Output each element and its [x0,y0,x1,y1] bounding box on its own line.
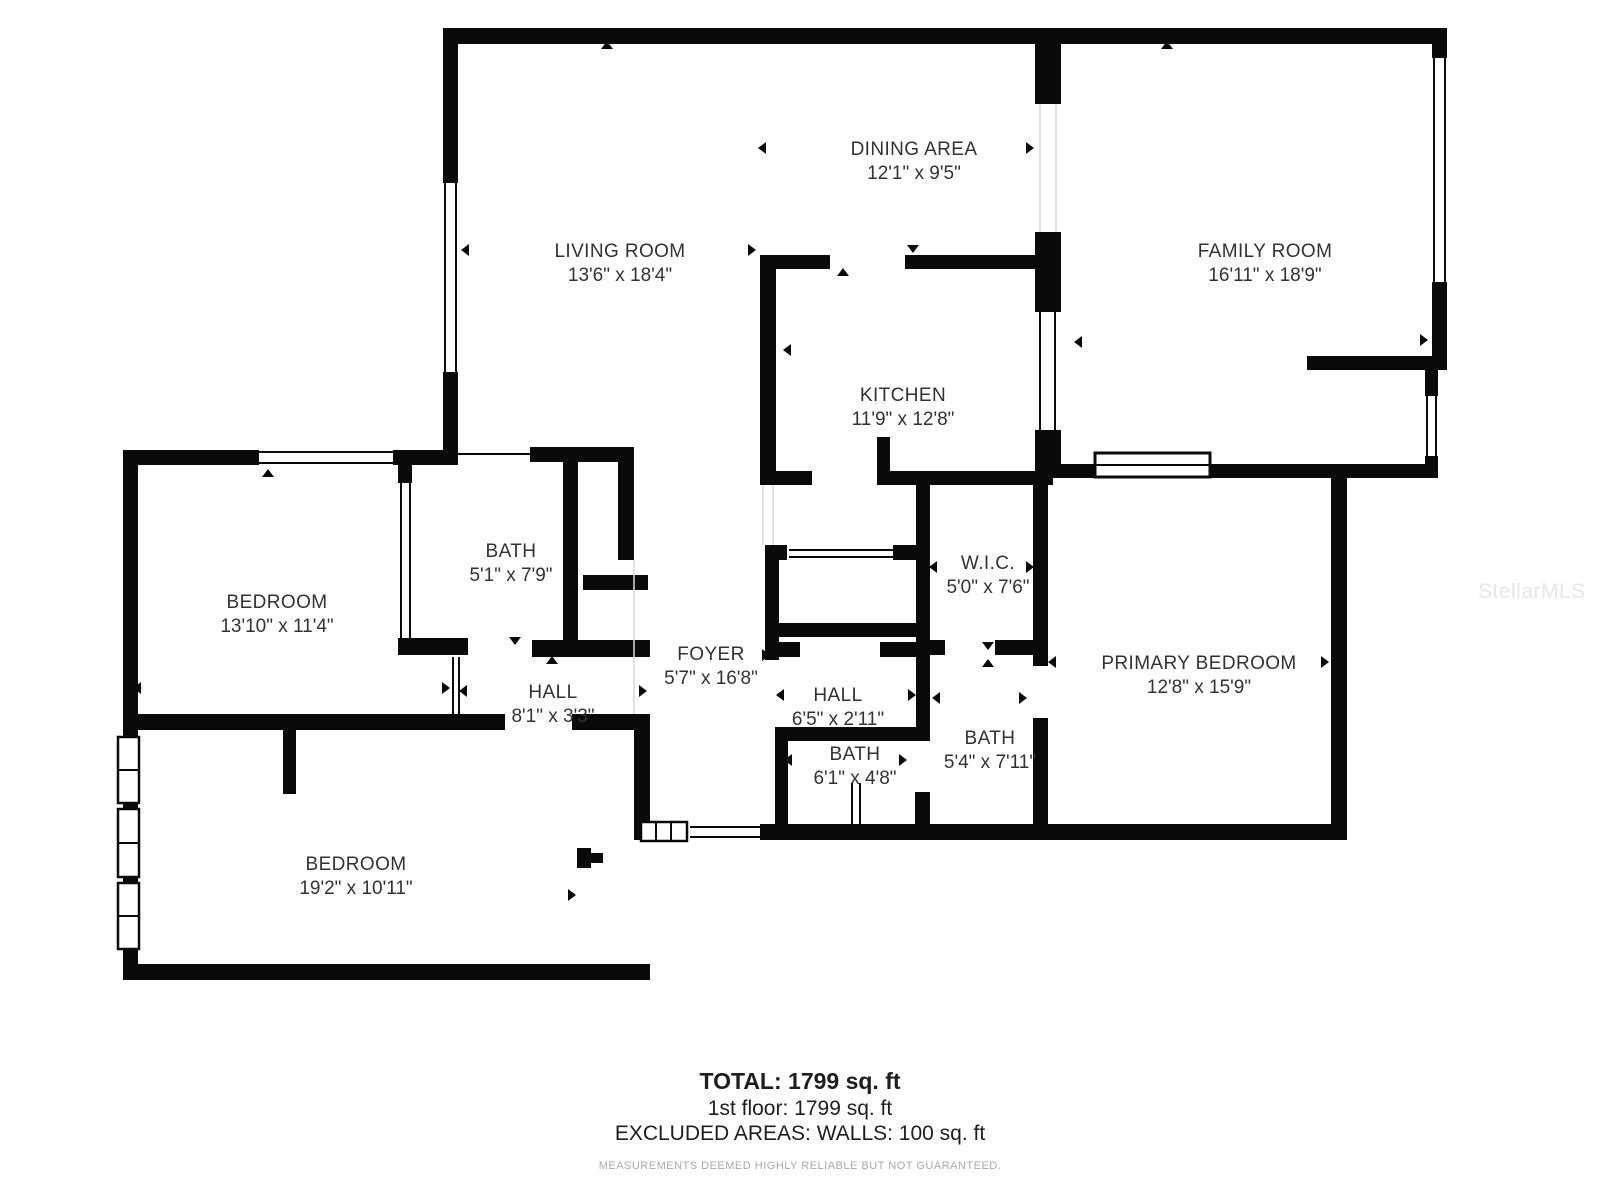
total-area-text: TOTAL: 1799 sq. ft [0,1066,1600,1096]
room-label-kitchen: KITCHEN 11'9" x 12'8" [852,384,955,432]
room-name: BEDROOM [220,591,333,615]
arrow-left-icon [758,142,766,154]
room-dims: 6'5" x 2'11" [792,708,884,732]
room-name: W.I.C. [946,552,1029,576]
room-dims: 5'4" x 7'11" [944,751,1036,775]
arrow-down-icon [907,245,919,253]
window-icon [1035,312,1061,430]
arrow-down-icon [509,637,521,645]
window-icon [443,183,458,372]
room-label-bath-3: BATH 5'4" x 7'11" [944,727,1036,775]
arrow-left-icon [1048,656,1056,668]
room-dims: 8'1" x 3'3" [511,705,594,729]
room-label-hall-1: HALL 8'1" x 3'3" [511,681,594,729]
room-dims: 19'2" x 10'11" [299,877,412,901]
arrow-up-icon [262,469,274,477]
room-name: BATH [813,743,896,767]
room-name: DINING AREA [851,138,978,162]
room-dims: 13'10" x 11'4" [220,615,333,639]
stellar-mls-watermark: StellarMLS [1478,580,1586,604]
arrow-left-icon [776,689,784,701]
window-icon [1432,58,1447,282]
arrow-right-icon [1321,656,1329,668]
room-label-primary-bedroom: PRIMARY BEDROOM 12'8" x 15'9" [1101,652,1296,700]
floor-plan-page: DINING AREA 12'1" x 9'5" LIVING ROOM 13'… [0,0,1600,1200]
room-name: BATH [469,540,552,564]
arrow-left-icon [459,685,467,697]
room-dims: 5'0" x 7'6" [946,576,1029,600]
arrow-up-icon [546,656,558,664]
arrow-right-icon [899,754,907,766]
entry-door-icon [641,822,687,841]
sliding-window-icon [1095,453,1210,477]
window-icon [259,450,393,465]
room-name: BEDROOM [299,853,412,877]
faint-guide-lines [634,104,1056,714]
arrow-left-icon [1074,336,1082,348]
arrow-right-icon [1019,692,1027,704]
wall-segments [123,28,1447,980]
room-dims: 5'1" x 7'9" [469,564,552,588]
room-label-living-room: LIVING ROOM 13'6" x 18'4" [554,240,685,288]
room-name: BATH [944,727,1036,751]
room-dims: 12'8" x 15'9" [1101,676,1296,700]
room-label-foyer: FOYER 5'7" x 16'8" [664,643,758,691]
room-name: FOYER [664,643,758,667]
arrow-up-icon [837,268,849,276]
arrow-up-icon [982,659,994,667]
arrow-right-icon [748,244,756,256]
arrow-right-icon [639,685,647,697]
room-label-hall-2: HALL 6'5" x 2'11" [792,684,884,732]
room-name: HALL [511,681,594,705]
arrow-right-icon [908,689,916,701]
room-label-bedroom-2: BEDROOM 19'2" x 10'11" [299,853,412,901]
room-name: HALL [792,684,884,708]
room-label-dining-area: DINING AREA 12'1" x 9'5" [851,138,978,186]
window-icon [118,809,139,877]
room-dims: 16'11" x 18'9" [1198,264,1333,288]
arrow-right-icon [1026,142,1034,154]
room-label-family-room: FAMILY ROOM 16'11" x 18'9" [1198,240,1333,288]
window-icon [118,883,139,949]
arrow-left-icon [461,244,469,256]
room-dims: 12'1" x 9'5" [851,162,978,186]
arrow-left-icon [783,344,791,356]
first-floor-area-text: 1st floor: 1799 sq. ft [0,1096,1600,1121]
room-dims: 5'7" x 16'8" [664,667,758,691]
walls [123,28,1447,980]
room-name: PRIMARY BEDROOM [1101,652,1296,676]
arrow-left-icon [932,692,940,704]
excluded-areas-text: EXCLUDED AREAS: WALLS: 100 sq. ft [0,1121,1600,1146]
arrow-right-icon [568,889,576,901]
arrow-right-icon [442,682,450,694]
room-label-bath-1: BATH 5'1" x 7'9" [469,540,552,588]
disclaimer-text: MEASUREMENTS DEEMED HIGHLY RELIABLE BUT … [0,1160,1600,1172]
room-dims: 13'6" x 18'4" [554,264,685,288]
arrow-down-icon [982,642,994,650]
room-label-bath-2: BATH 6'1" x 4'8" [813,743,896,791]
room-label-bedroom-1: BEDROOM 13'10" x 11'4" [220,591,333,639]
arrow-right-icon [1420,334,1428,346]
room-dims: 6'1" x 4'8" [813,767,896,791]
room-name: KITCHEN [852,384,955,408]
room-name: FAMILY ROOM [1198,240,1333,264]
room-label-wic: W.I.C. 5'0" x 7'6" [946,552,1029,600]
window-icon [118,737,139,803]
area-summary: TOTAL: 1799 sq. ft 1st floor: 1799 sq. f… [0,1066,1600,1172]
room-name: LIVING ROOM [554,240,685,264]
window-icon [1425,396,1438,456]
arrow-left-icon [929,561,937,573]
room-dims: 11'9" x 12'8" [852,408,955,432]
